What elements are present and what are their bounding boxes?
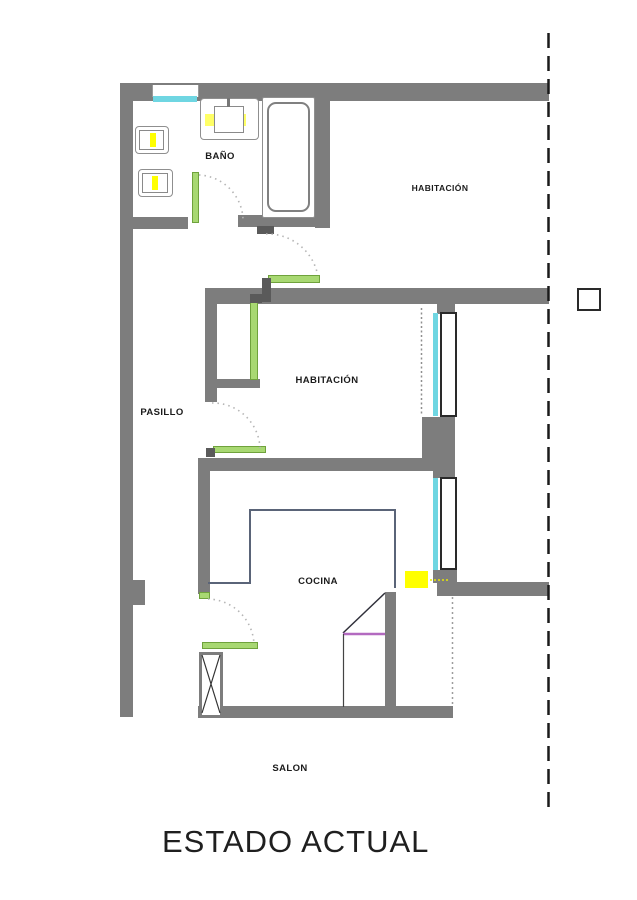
wall-bedroom-left <box>205 288 217 402</box>
wall-closet-bottom <box>217 379 260 388</box>
neighbor-box <box>577 288 601 311</box>
bathroom-door-swing-arc <box>199 175 243 219</box>
closet-door-leaf <box>250 297 258 380</box>
label-salon: SALON <box>255 763 325 774</box>
wall-kitchen-left <box>198 458 210 594</box>
label-habitacion-top: HABITACIÓN <box>400 183 480 193</box>
bedroom-window-glass <box>433 313 438 416</box>
label-habitacion-mid: HABITACIÓN <box>287 375 367 386</box>
kitchen-window-glass <box>433 478 438 570</box>
wall-salon-bottom <box>198 706 453 718</box>
bedroom-low-door-hinge <box>206 448 215 457</box>
wall-salon-right <box>385 592 396 718</box>
bidet-mark <box>152 176 158 190</box>
bedroom-low-door-leaf <box>213 446 266 453</box>
bedroom-top-door-swing-arc <box>266 234 317 272</box>
wall-left-exterior <box>120 83 133 717</box>
bedroom-low-door-swing-arc <box>212 403 260 448</box>
plan-title: ESTADO ACTUAL <box>162 824 429 860</box>
bedroom-window-frame <box>440 312 457 417</box>
bedroom-top-door-leaf <box>268 275 320 283</box>
bathtub-basin <box>267 102 310 212</box>
label-bano: BAÑO <box>200 151 240 162</box>
wall-bathroom-right <box>315 83 330 228</box>
bathroom-window-glass <box>153 96 197 102</box>
kitchen-door-leaf <box>202 642 258 649</box>
wall-kitchen-top <box>198 458 437 471</box>
label-cocina: COCINA <box>283 576 353 587</box>
closet-door-hinge <box>250 294 262 303</box>
column <box>199 652 223 718</box>
wall-kitchen-right <box>437 582 549 596</box>
toilet-mark <box>150 133 156 147</box>
kitchen-wall-end-cap <box>199 592 210 599</box>
bathroom-door-leaf <box>192 172 199 223</box>
salon-diagonal-line <box>343 593 385 633</box>
floor-plan: BAÑO HABITACIÓN HABITACIÓN PASILLO COCIN… <box>0 0 637 900</box>
wall-left-pilaster <box>133 580 145 605</box>
sink-basin <box>214 106 244 133</box>
kitchen-window-frame <box>440 477 457 570</box>
wall-stub-hinge <box>257 226 274 234</box>
kitchen-door-swing-arc <box>208 599 254 645</box>
wall-bathroom-bottom-left <box>120 217 188 229</box>
wall-window-pier <box>422 417 455 467</box>
sink-tap-icon <box>227 98 230 107</box>
bedroom-top-door-hinge <box>262 278 271 302</box>
kitchen-appliance <box>405 571 428 588</box>
label-pasillo: PASILLO <box>127 407 197 418</box>
